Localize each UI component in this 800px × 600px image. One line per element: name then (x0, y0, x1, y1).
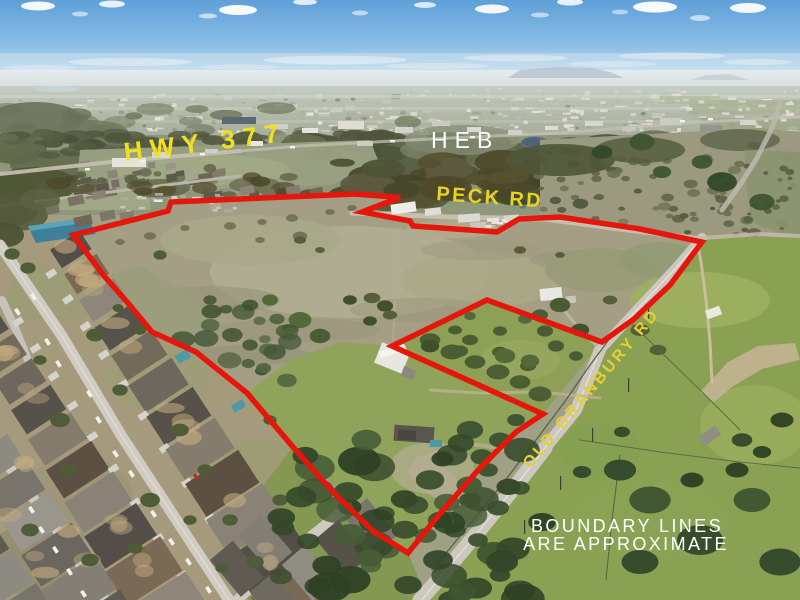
svg-text:ARE APPROXIMATE: ARE APPROXIMATE (523, 534, 729, 554)
svg-text:HEB: HEB (431, 127, 499, 153)
svg-text:BOUNDARY LINES: BOUNDARY LINES (531, 516, 723, 536)
